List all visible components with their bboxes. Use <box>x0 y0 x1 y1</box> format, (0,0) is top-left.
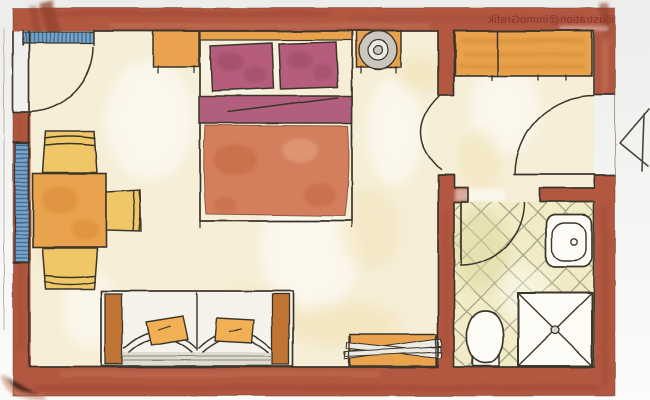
shower <box>518 293 592 366</box>
floor-plan: illustration@immoGrafik <box>0 0 650 400</box>
plan-canvas: illustration@immoGrafik <box>0 0 650 400</box>
chair-right <box>106 190 141 231</box>
armrest-right <box>272 294 289 364</box>
wardrobe <box>455 31 592 76</box>
bed-blanket <box>199 96 352 123</box>
table-lamp <box>359 31 397 69</box>
luggage-bench <box>344 334 442 366</box>
window-left <box>15 144 29 262</box>
chair-top <box>43 131 97 172</box>
toilet <box>467 311 503 366</box>
washbasin <box>546 215 592 267</box>
watermark-text: illustration@immoGrafik <box>488 14 614 26</box>
nightstand-left <box>153 31 199 67</box>
sofa <box>101 291 293 366</box>
sofa-cushion-left <box>146 316 188 345</box>
armrest-left <box>105 294 122 364</box>
balcony-window-top <box>23 32 94 43</box>
bed-headboard <box>200 31 352 40</box>
chair-bottom <box>43 248 97 289</box>
